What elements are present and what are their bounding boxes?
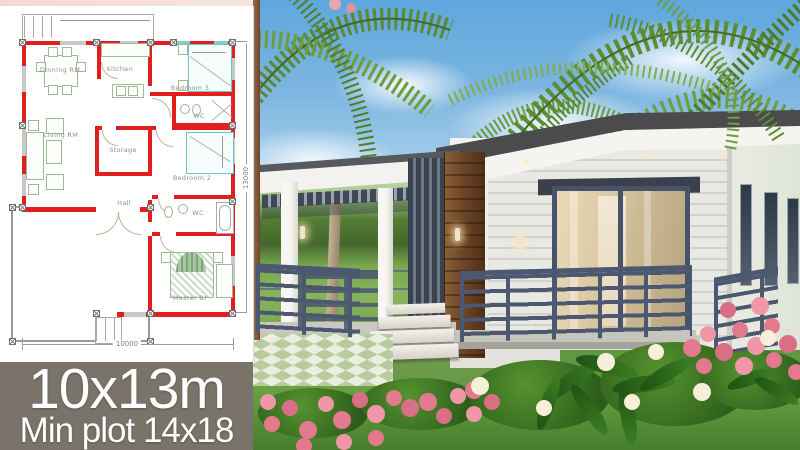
column-marker (93, 310, 100, 317)
room-label-bedroom3: Bedroom 3 (171, 84, 209, 92)
room-label-wc1: WC (193, 112, 205, 120)
wardrobe (216, 264, 233, 298)
dining-chair (48, 47, 58, 57)
shower-line (212, 100, 233, 117)
window-break (60, 41, 86, 45)
dining-chair (62, 85, 72, 95)
eave-light (520, 158, 532, 165)
banner-size-text: 10x13m (28, 364, 225, 414)
coffee-table (46, 140, 62, 164)
dining-chair (62, 47, 72, 57)
house-design-promo-image: 13000 10000 Dinning RM kitchen Bedroom 3… (0, 0, 800, 450)
shower-line (212, 103, 233, 120)
column-marker (170, 39, 177, 46)
shrub (360, 378, 480, 430)
column-marker (9, 338, 16, 345)
room-label-kitchen: kitchen (107, 65, 133, 73)
column-marker (147, 39, 154, 46)
door-arc (156, 130, 173, 147)
door-arc (152, 98, 171, 117)
window-break (22, 66, 26, 92)
column-marker (147, 204, 154, 211)
door-arc (96, 212, 119, 235)
stair-treads (24, 16, 60, 38)
room-label-dining: Dinning RM (40, 66, 80, 74)
plan-line (60, 20, 150, 21)
wall-segment (95, 126, 99, 176)
dimension-ext (22, 338, 23, 350)
dining-chair (48, 85, 58, 95)
column-marker (19, 204, 26, 211)
sink (180, 104, 190, 114)
column-marker (229, 122, 236, 129)
room-label-hall: Hall (117, 199, 131, 207)
column-marker (19, 122, 26, 129)
step (387, 303, 445, 315)
side-window (787, 198, 799, 284)
armchair (46, 174, 64, 190)
bed-pillow-line (192, 52, 226, 53)
floor-plan-sheet: 13000 10000 Dinning RM kitchen Bedroom 3… (0, 6, 254, 362)
room-label-storage: Storage (109, 146, 137, 154)
side-table (28, 120, 39, 131)
door-arc (118, 212, 141, 235)
room-label-bedroom2: Bedroom 2 (173, 174, 211, 182)
side-table (161, 252, 171, 263)
sofa (26, 132, 44, 180)
wall-segment (148, 200, 152, 317)
column-marker (93, 39, 100, 46)
room-label-living: Living RM (44, 131, 78, 139)
room-label-wc2: WC (192, 209, 204, 217)
side-table (178, 44, 188, 55)
wall-segment (150, 92, 235, 96)
dimension-width-label: 10000 (113, 340, 141, 348)
wall-segment (148, 126, 152, 176)
dimension-ext (235, 312, 247, 313)
sheet-top-strip (0, 0, 253, 6)
wall-lamp (518, 236, 523, 249)
room-label-master: Master Br (173, 294, 207, 302)
wall-lamp (455, 228, 460, 241)
column-marker (9, 204, 16, 211)
terrace-outline (11, 206, 13, 342)
terrace-railing (714, 266, 778, 356)
terrace-railing (460, 265, 692, 342)
step (378, 315, 450, 330)
toilet (164, 206, 173, 218)
banner-plot-text: Min plot 14x18 (20, 414, 234, 448)
window-break (124, 312, 146, 317)
kitchen-counter (101, 43, 150, 57)
column-marker (19, 39, 26, 46)
terrace-railing (298, 270, 378, 331)
column-marker (229, 198, 236, 205)
dimension-height-label: 13000 (242, 164, 250, 192)
side-table (28, 184, 39, 195)
wall-lamp (300, 226, 305, 239)
wall-segment (172, 92, 176, 127)
column-marker (147, 310, 154, 317)
wall-segment (95, 172, 152, 176)
side-table (213, 252, 223, 263)
dimension-ext (233, 338, 234, 350)
door-arc (160, 236, 177, 253)
size-banner: 10x13m Min plot 14x18 (0, 362, 253, 450)
kitchen-sink (116, 86, 126, 96)
bed-pillow-line (222, 136, 223, 168)
palm-frond-foreground (600, 0, 800, 170)
kitchen-stove (128, 86, 138, 96)
wall-segment (22, 207, 96, 212)
stair-treads (96, 318, 119, 341)
shrub (258, 388, 368, 438)
dimension-ext (235, 41, 247, 42)
door-arc (102, 130, 118, 146)
bathtub-basin (219, 205, 231, 231)
sink (178, 204, 188, 214)
